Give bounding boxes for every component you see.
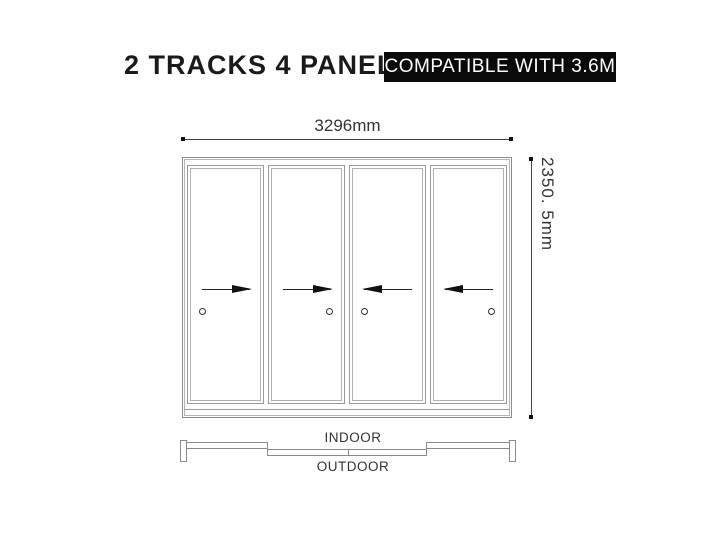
width-dimension-label: 3296mm bbox=[183, 116, 512, 136]
compatibility-badge: COMPATIBLE WITH 3.6M bbox=[384, 52, 616, 82]
diagram-canvas: 2 TRACKS 4 PANELS COMPATIBLE WITH 3.6M 3… bbox=[0, 0, 720, 554]
door-panel bbox=[430, 165, 507, 404]
dimension-tick bbox=[509, 137, 513, 141]
slide-direction-right-arrow-icon bbox=[200, 285, 252, 294]
door-frame bbox=[182, 157, 512, 418]
indoor-track-panel-left bbox=[186, 442, 268, 449]
height-dimension-line bbox=[531, 158, 532, 418]
slide-direction-left-arrow-icon bbox=[443, 285, 495, 294]
outdoor-label: OUTDOOR bbox=[293, 459, 413, 474]
slide-direction-right-arrow-icon bbox=[281, 285, 333, 294]
handle-dot bbox=[199, 308, 206, 315]
width-dimension-line bbox=[183, 139, 512, 140]
door-panel bbox=[268, 165, 345, 404]
dimension-tick bbox=[529, 157, 533, 161]
handle-dot bbox=[326, 308, 333, 315]
panel-joint-mark bbox=[348, 450, 349, 455]
height-dimension-label: 2350. 5mm bbox=[537, 157, 557, 418]
handle-dot bbox=[488, 308, 495, 315]
page-title: 2 TRACKS 4 PANELS bbox=[124, 50, 360, 84]
handle-dot bbox=[361, 308, 368, 315]
indoor-track-panel-right bbox=[426, 442, 510, 449]
door-panel bbox=[187, 165, 264, 404]
dimension-tick bbox=[529, 415, 533, 419]
outdoor-track-panels-middle bbox=[267, 449, 427, 456]
bottom-rail-line bbox=[184, 409, 510, 410]
door-panel bbox=[349, 165, 426, 404]
dimension-tick bbox=[181, 137, 185, 141]
track-end-cap-right bbox=[509, 440, 516, 462]
panels-row bbox=[187, 165, 507, 404]
indoor-label: INDOOR bbox=[298, 430, 408, 445]
slide-direction-left-arrow-icon bbox=[362, 285, 414, 294]
